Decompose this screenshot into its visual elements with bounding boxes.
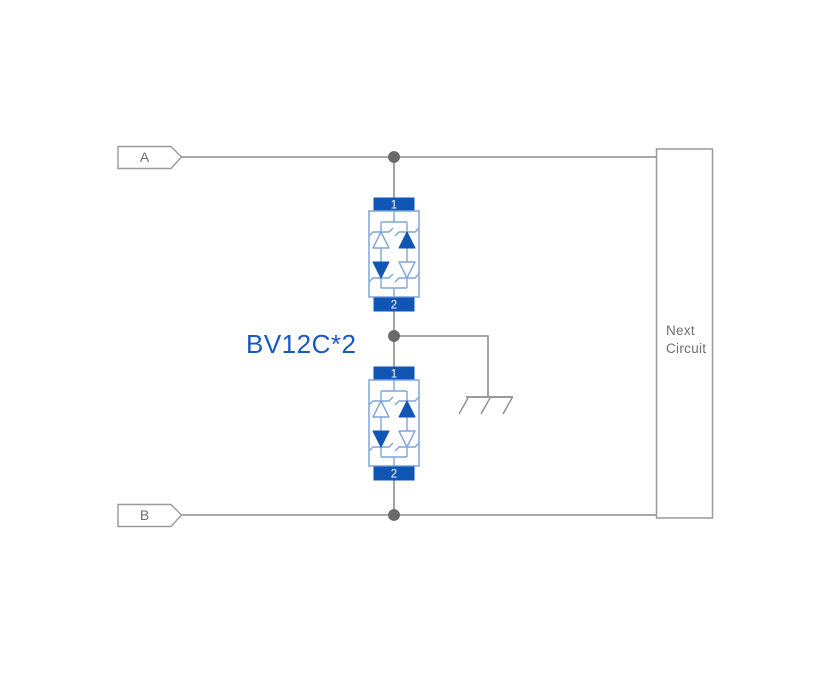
- component-outline: [369, 211, 419, 297]
- pin-2-label: 2: [391, 300, 397, 312]
- ground-ticks: [459, 398, 512, 414]
- diode-up-hollow-icon: [373, 232, 389, 248]
- diode-down-hollow-icon: [399, 262, 415, 278]
- diode-down-hollow-icon: [399, 431, 415, 447]
- ground-icon: [459, 397, 513, 414]
- component-outline: [369, 380, 419, 466]
- tvs-component-1: 1 2: [368, 197, 420, 312]
- circuit-diagram: 1 2 1 2 A B BV12C*2 Next Circuit: [0, 0, 832, 675]
- diode-up-filled-icon: [399, 232, 415, 248]
- port-a-label: A: [118, 146, 171, 168]
- next-circuit-label-line1: Next: [666, 322, 706, 340]
- next-circuit-label: Next Circuit: [666, 322, 706, 357]
- port-b-label: B: [118, 504, 171, 526]
- next-circuit-label-line2: Circuit: [666, 340, 706, 358]
- tvs-component-2: 1 2: [368, 366, 420, 481]
- junction-dot-top: [389, 152, 400, 163]
- diode-down-filled-icon: [373, 262, 389, 278]
- pin-1-label: 1: [391, 200, 397, 212]
- junction-dot-middle: [389, 331, 400, 342]
- internal-wires: [381, 380, 407, 467]
- internal-wires: [381, 211, 407, 298]
- junction-dot-bottom: [389, 510, 400, 521]
- diode-up-filled-icon: [399, 401, 415, 417]
- pin-2-label: 2: [391, 469, 397, 481]
- part-number-label: BV12C*2: [246, 329, 356, 360]
- pin-1-label: 1: [391, 369, 397, 381]
- diode-down-filled-icon: [373, 431, 389, 447]
- wiring-layer: [0, 0, 832, 675]
- diode-up-hollow-icon: [373, 401, 389, 417]
